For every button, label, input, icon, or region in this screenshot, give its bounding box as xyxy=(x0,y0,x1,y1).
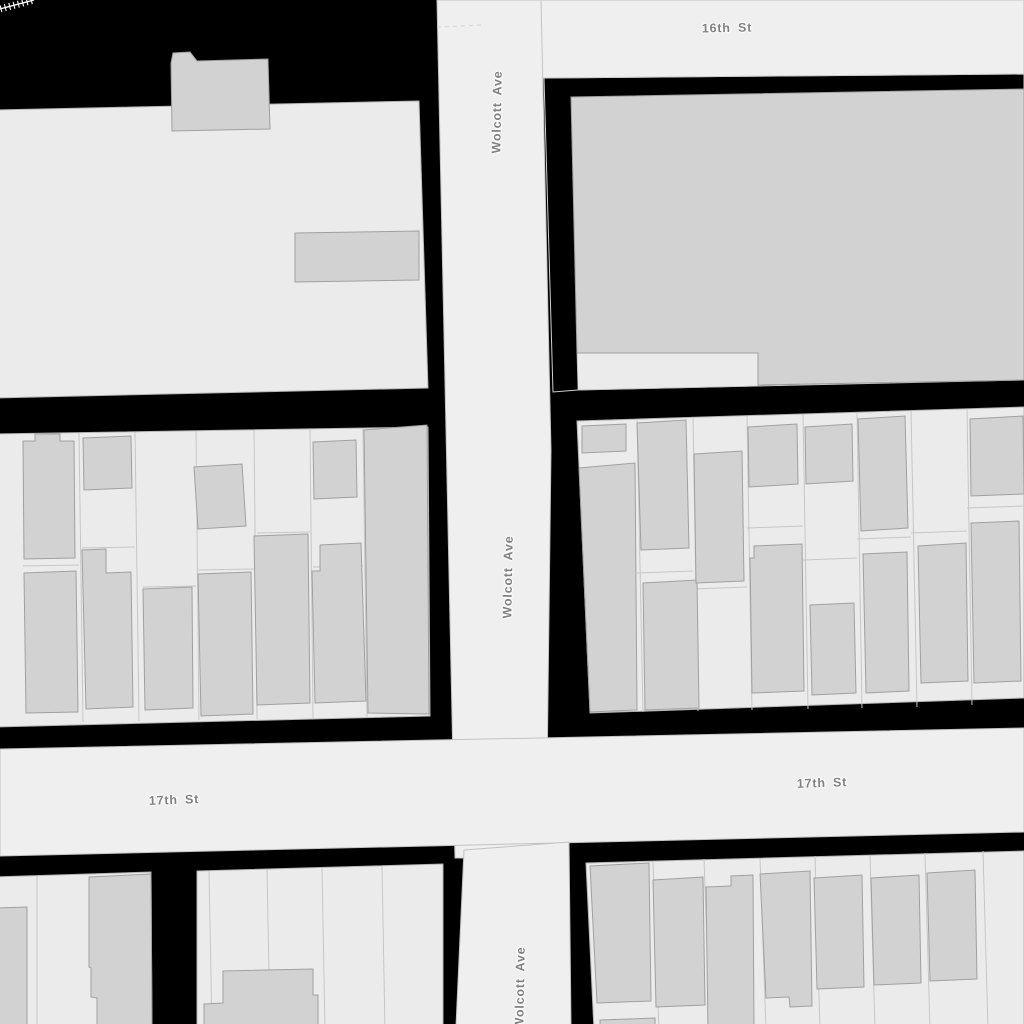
street-label-wolcott-ave: Wolcott Ave xyxy=(512,946,527,1024)
building-footprint xyxy=(927,870,977,981)
building-footprint xyxy=(254,534,310,705)
street-label-wolcott-ave: Wolcott Ave xyxy=(489,70,504,153)
map-canvas[interactable]: 16th StWolcott AveWolcott Ave17th St17th… xyxy=(0,0,1024,1024)
building-footprint xyxy=(0,907,27,1024)
building-footprint xyxy=(582,424,626,453)
building-footprint xyxy=(637,420,689,550)
building-footprint xyxy=(143,587,193,710)
building-footprint xyxy=(364,425,429,714)
building-footprint xyxy=(24,571,78,713)
building-footprint xyxy=(23,434,75,559)
building-footprint xyxy=(814,875,864,989)
building-footprint xyxy=(171,52,270,131)
building-footprint xyxy=(83,436,132,490)
building-footprint xyxy=(89,874,152,1024)
building-footprint xyxy=(750,544,804,693)
building-footprint xyxy=(918,543,968,683)
building-footprint xyxy=(810,603,856,695)
building-footprint xyxy=(295,231,419,282)
building-footprint xyxy=(760,871,812,1007)
building-footprint xyxy=(871,875,921,985)
building-footprint xyxy=(863,552,909,693)
block-top-right-parcel-notch xyxy=(577,351,758,390)
street-label-wolcott-ave: Wolcott Ave xyxy=(500,535,515,618)
building-footprint xyxy=(971,521,1021,683)
building-footprint xyxy=(748,424,798,487)
map-render-layer xyxy=(0,0,1024,1024)
building-footprint xyxy=(312,543,366,703)
building-footprint xyxy=(579,463,637,712)
building-footprint xyxy=(694,451,744,583)
building-footprint xyxy=(194,464,246,529)
street-label-17th-st: 17th St xyxy=(797,775,848,791)
building-footprint xyxy=(198,572,253,716)
building-footprint xyxy=(706,875,754,1024)
building-footprint xyxy=(653,877,705,1007)
building-footprint xyxy=(590,863,651,1003)
building-footprint xyxy=(313,440,357,499)
building-footprint xyxy=(805,424,853,484)
street-label-17th-st: 17th St xyxy=(149,792,200,808)
building-footprint xyxy=(82,549,133,709)
building-footprint xyxy=(858,416,908,531)
building-footprint xyxy=(643,580,699,710)
street-label-16th-st: 16th St xyxy=(702,21,753,36)
street-polygon-17th-st-band xyxy=(0,728,1024,856)
building-footprint xyxy=(970,416,1024,496)
building-footprint xyxy=(571,89,1024,385)
